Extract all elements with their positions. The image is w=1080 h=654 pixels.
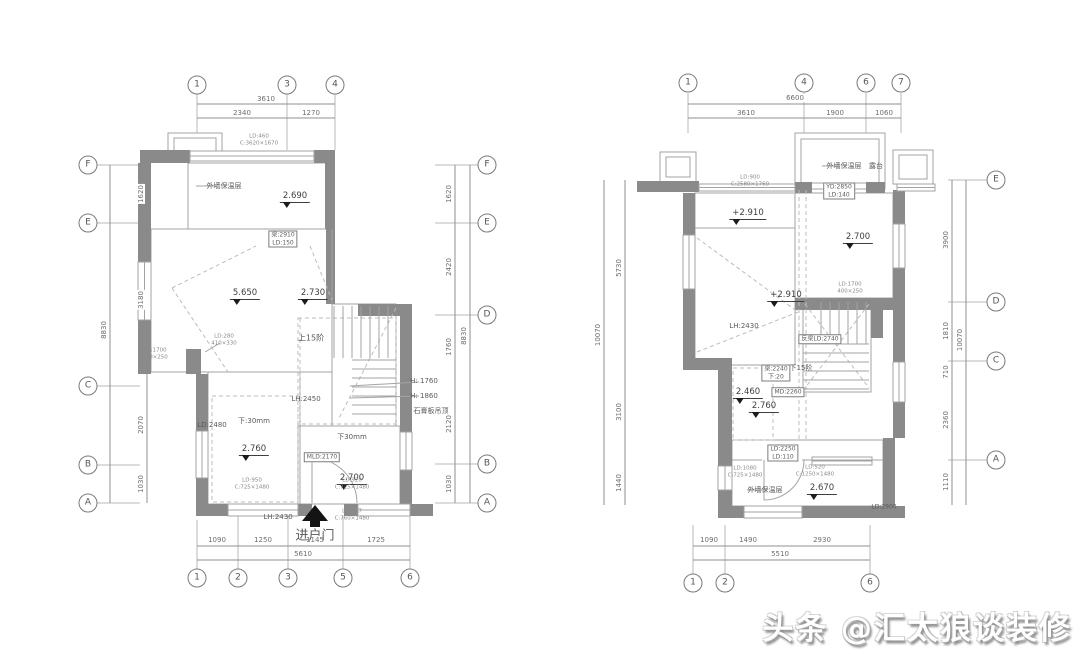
dimension-text: 1810 — [942, 321, 950, 341]
dimension-text: 2070 — [137, 415, 145, 435]
grid-bubble: E — [79, 214, 98, 233]
annotation-label: LH:2450 — [291, 395, 320, 403]
annotation-overlay: 13412356FECBAFEDBA1467126EDCA36102340127… — [0, 0, 1080, 654]
elevation-marker: 2.760 — [239, 444, 269, 456]
annotation-label: H: 1860 — [410, 392, 438, 400]
small-annotation: LD:520C:1250×1480 — [796, 464, 834, 477]
annotation-label: 露台 — [869, 161, 883, 171]
small-annotation-line: LD:1700 — [142, 347, 168, 354]
grid-bubble: C — [987, 352, 1006, 371]
grid-bubble: B — [478, 455, 497, 474]
annotation-label: LH:2430 — [263, 513, 292, 521]
annotation-label: H: 1760 — [410, 377, 438, 385]
elevation-marker: 2.690 — [280, 191, 310, 203]
dimension-text: 1060 — [874, 109, 894, 117]
dimension-text: 710 — [942, 364, 950, 379]
grid-bubble: 3 — [279, 569, 298, 588]
boxed-annotation: 梁:2910LD:150 — [268, 231, 297, 248]
elevation-marker: 2.730 — [298, 288, 328, 300]
boxed-annotation-line: 下:20 — [764, 373, 787, 381]
small-annotation-line: LD:1080 — [728, 465, 763, 472]
dimension-text: 5510 — [770, 550, 790, 558]
dimension-text: 5610 — [293, 550, 313, 558]
small-annotation-line: C:725×1480 — [728, 472, 763, 479]
grid-bubble: A — [478, 494, 497, 513]
small-annotation-line: LD:520 — [796, 464, 834, 471]
dimension-text: 1030 — [445, 474, 453, 494]
boxed-annotation-line: MLD:2170 — [307, 453, 337, 461]
elevation-marker: +2.910 — [767, 290, 804, 302]
dimension-text: 1620 — [445, 184, 453, 204]
elevation-marker: 2.760 — [749, 401, 779, 413]
grid-bubble: C — [79, 377, 98, 396]
boxed-annotation-line: 反梁LD:2740 — [801, 335, 838, 343]
grid-bubble: 1 — [188, 76, 207, 95]
boxed-annotation-line: LD:150 — [271, 239, 294, 247]
grid-bubble: 4 — [326, 76, 345, 95]
annotation-label: 下30mm — [337, 432, 367, 442]
small-annotation: LD:460C:3620×1670 — [240, 133, 278, 146]
grid-bubble: E — [987, 171, 1006, 190]
small-annotation: LD:1080C:725×1480 — [728, 465, 763, 478]
grid-bubble: 2 — [716, 574, 735, 593]
elevation-marker: 2.670 — [807, 483, 837, 495]
grid-bubble: 6 — [401, 569, 420, 588]
dimension-text: 10070 — [956, 328, 964, 352]
grid-bubble: 1 — [679, 74, 698, 93]
dimension-text: 5730 — [615, 258, 623, 278]
small-annotation: LD:280410×330 — [211, 333, 237, 346]
dimension-text: 3100 — [615, 402, 623, 422]
floorplan-sheet: 13412356FECBAFEDBA1467126EDCA36102340127… — [0, 0, 1080, 654]
small-annotation-line: C:725×1480 — [335, 484, 370, 491]
annotation-label: 上15阶 — [298, 333, 324, 344]
annotation-label: 进户门 — [295, 525, 334, 544]
dimension-text: 1250 — [253, 536, 273, 544]
small-annotation-line: C:725×1480 — [235, 484, 270, 491]
annotation-label: 外墙保温层 — [207, 181, 242, 191]
small-annotation-line: C:1250×1480 — [796, 471, 834, 478]
elevation-marker: 2.700 — [843, 232, 873, 244]
dimension-text: 3900 — [942, 230, 950, 250]
dimension-text: 10070 — [594, 323, 602, 347]
small-annotation: LD:950C:725×1480 — [235, 477, 270, 490]
boxed-annotation: MLD:2170 — [304, 452, 340, 462]
dimension-text: 2420 — [445, 257, 453, 277]
elevation-marker: 2.460 — [733, 387, 763, 399]
small-annotation-line: LD:280 — [211, 333, 237, 340]
dimension-text: 1440 — [615, 473, 623, 493]
small-annotation: LD:900C:2580×1760 — [731, 174, 769, 187]
dimension-text: 3610 — [736, 109, 756, 117]
annotation-label: 下15阶 — [790, 363, 813, 373]
watermark-text: 头条 @汇太狼谈装修 — [762, 603, 1072, 648]
annotation-label: 外墙保温层 — [827, 161, 862, 171]
boxed-annotation: 反梁LD:2740 — [798, 334, 841, 344]
dimension-text: 1030 — [137, 474, 145, 494]
grid-bubble: 3 — [278, 76, 297, 95]
boxed-annotation: LD:2250LD:110 — [767, 445, 798, 462]
boxed-annotation-line: LD:140 — [826, 191, 852, 199]
grid-bubble: F — [478, 156, 497, 175]
dimension-text: 3180 — [137, 290, 145, 310]
grid-bubble: A — [987, 451, 1006, 470]
boxed-annotation: YD:2850LD:140 — [823, 183, 855, 200]
grid-bubble: 1 — [684, 574, 703, 593]
grid-bubble: 4 — [795, 74, 814, 93]
grid-bubble: 7 — [892, 74, 911, 93]
small-annotation-line: LD:950 — [235, 477, 270, 484]
small-annotation-line: LD:920 — [335, 477, 370, 484]
annotation-label: LD:2900 — [871, 504, 896, 511]
dimension-text: 1090 — [207, 536, 227, 544]
boxed-annotation: MD:2260 — [771, 387, 804, 397]
dimension-text: 1270 — [301, 109, 321, 117]
small-annotation-line: 400×250 — [142, 354, 168, 361]
boxed-annotation-line: LD:110 — [770, 453, 795, 461]
dimension-text: 1090 — [699, 536, 719, 544]
small-annotation: LD:920C:725×1480 — [335, 477, 370, 490]
small-annotation-line: LD:900 — [731, 174, 769, 181]
elevation-marker: +2.910 — [729, 208, 766, 220]
small-annotation: LD:757C:760×1480 — [335, 508, 370, 521]
dimension-text: 6600 — [785, 94, 805, 102]
dimension-text: 2360 — [942, 410, 950, 430]
grid-bubble: B — [79, 456, 98, 475]
grid-bubble: F — [79, 156, 98, 175]
grid-bubble: D — [987, 293, 1006, 312]
grid-bubble: 5 — [334, 569, 353, 588]
annotation-label: 石膏板吊顶 — [414, 406, 449, 416]
dimension-text: 1490 — [738, 536, 758, 544]
dimension-text: 1110 — [942, 472, 950, 492]
annotation-label: 外墙保温层 — [748, 485, 783, 495]
dimension-text: 2120 — [445, 414, 453, 434]
small-annotation-line: LD:460 — [240, 133, 278, 140]
annotation-label: 下:30mm — [238, 416, 270, 426]
boxed-annotation: 梁:2240下:20 — [761, 365, 790, 382]
grid-bubble: A — [79, 494, 98, 513]
dimension-text: 2930 — [812, 536, 832, 544]
boxed-annotation-line: 梁:2240 — [764, 366, 787, 374]
small-annotation-line: 410×330 — [211, 340, 237, 347]
grid-bubble: 1 — [188, 569, 207, 588]
small-annotation-line: C:760×1480 — [335, 515, 370, 522]
elevation-marker: 5.650 — [230, 288, 260, 300]
dimension-text: 2340 — [232, 109, 252, 117]
dimension-text: 8830 — [460, 326, 468, 346]
small-annotation-line: 400×250 — [837, 288, 863, 295]
dimension-text: 1725 — [366, 536, 386, 544]
grid-bubble: 6 — [861, 574, 880, 593]
boxed-annotation-line: 梁:2910 — [271, 232, 294, 240]
dimension-text: 1620 — [137, 184, 145, 204]
small-annotation-line: LD:757 — [335, 508, 370, 515]
small-annotation-line: C:2580×1760 — [731, 181, 769, 188]
dimension-text: 3610 — [256, 95, 276, 103]
small-annotation-line: C:3620×1670 — [240, 140, 278, 147]
boxed-annotation-line: MD:2260 — [774, 388, 801, 396]
grid-bubble: E — [478, 214, 497, 233]
grid-bubble: 6 — [857, 74, 876, 93]
annotation-label: LH:2430 — [729, 322, 758, 330]
dimension-text: 1900 — [825, 109, 845, 117]
boxed-annotation-line: YD:2850 — [826, 184, 852, 192]
dimension-text: 1760 — [445, 337, 453, 357]
small-annotation: LD:1700400×250 — [142, 347, 168, 360]
boxed-annotation-line: LD:2250 — [770, 446, 795, 454]
small-annotation: LD:1700400×250 — [837, 281, 863, 294]
annotation-label: LD:2480 — [197, 421, 226, 429]
grid-bubble: 2 — [229, 569, 248, 588]
grid-bubble: D — [478, 306, 497, 325]
small-annotation-line: LD:1700 — [837, 281, 863, 288]
dimension-text: 8830 — [100, 320, 108, 340]
